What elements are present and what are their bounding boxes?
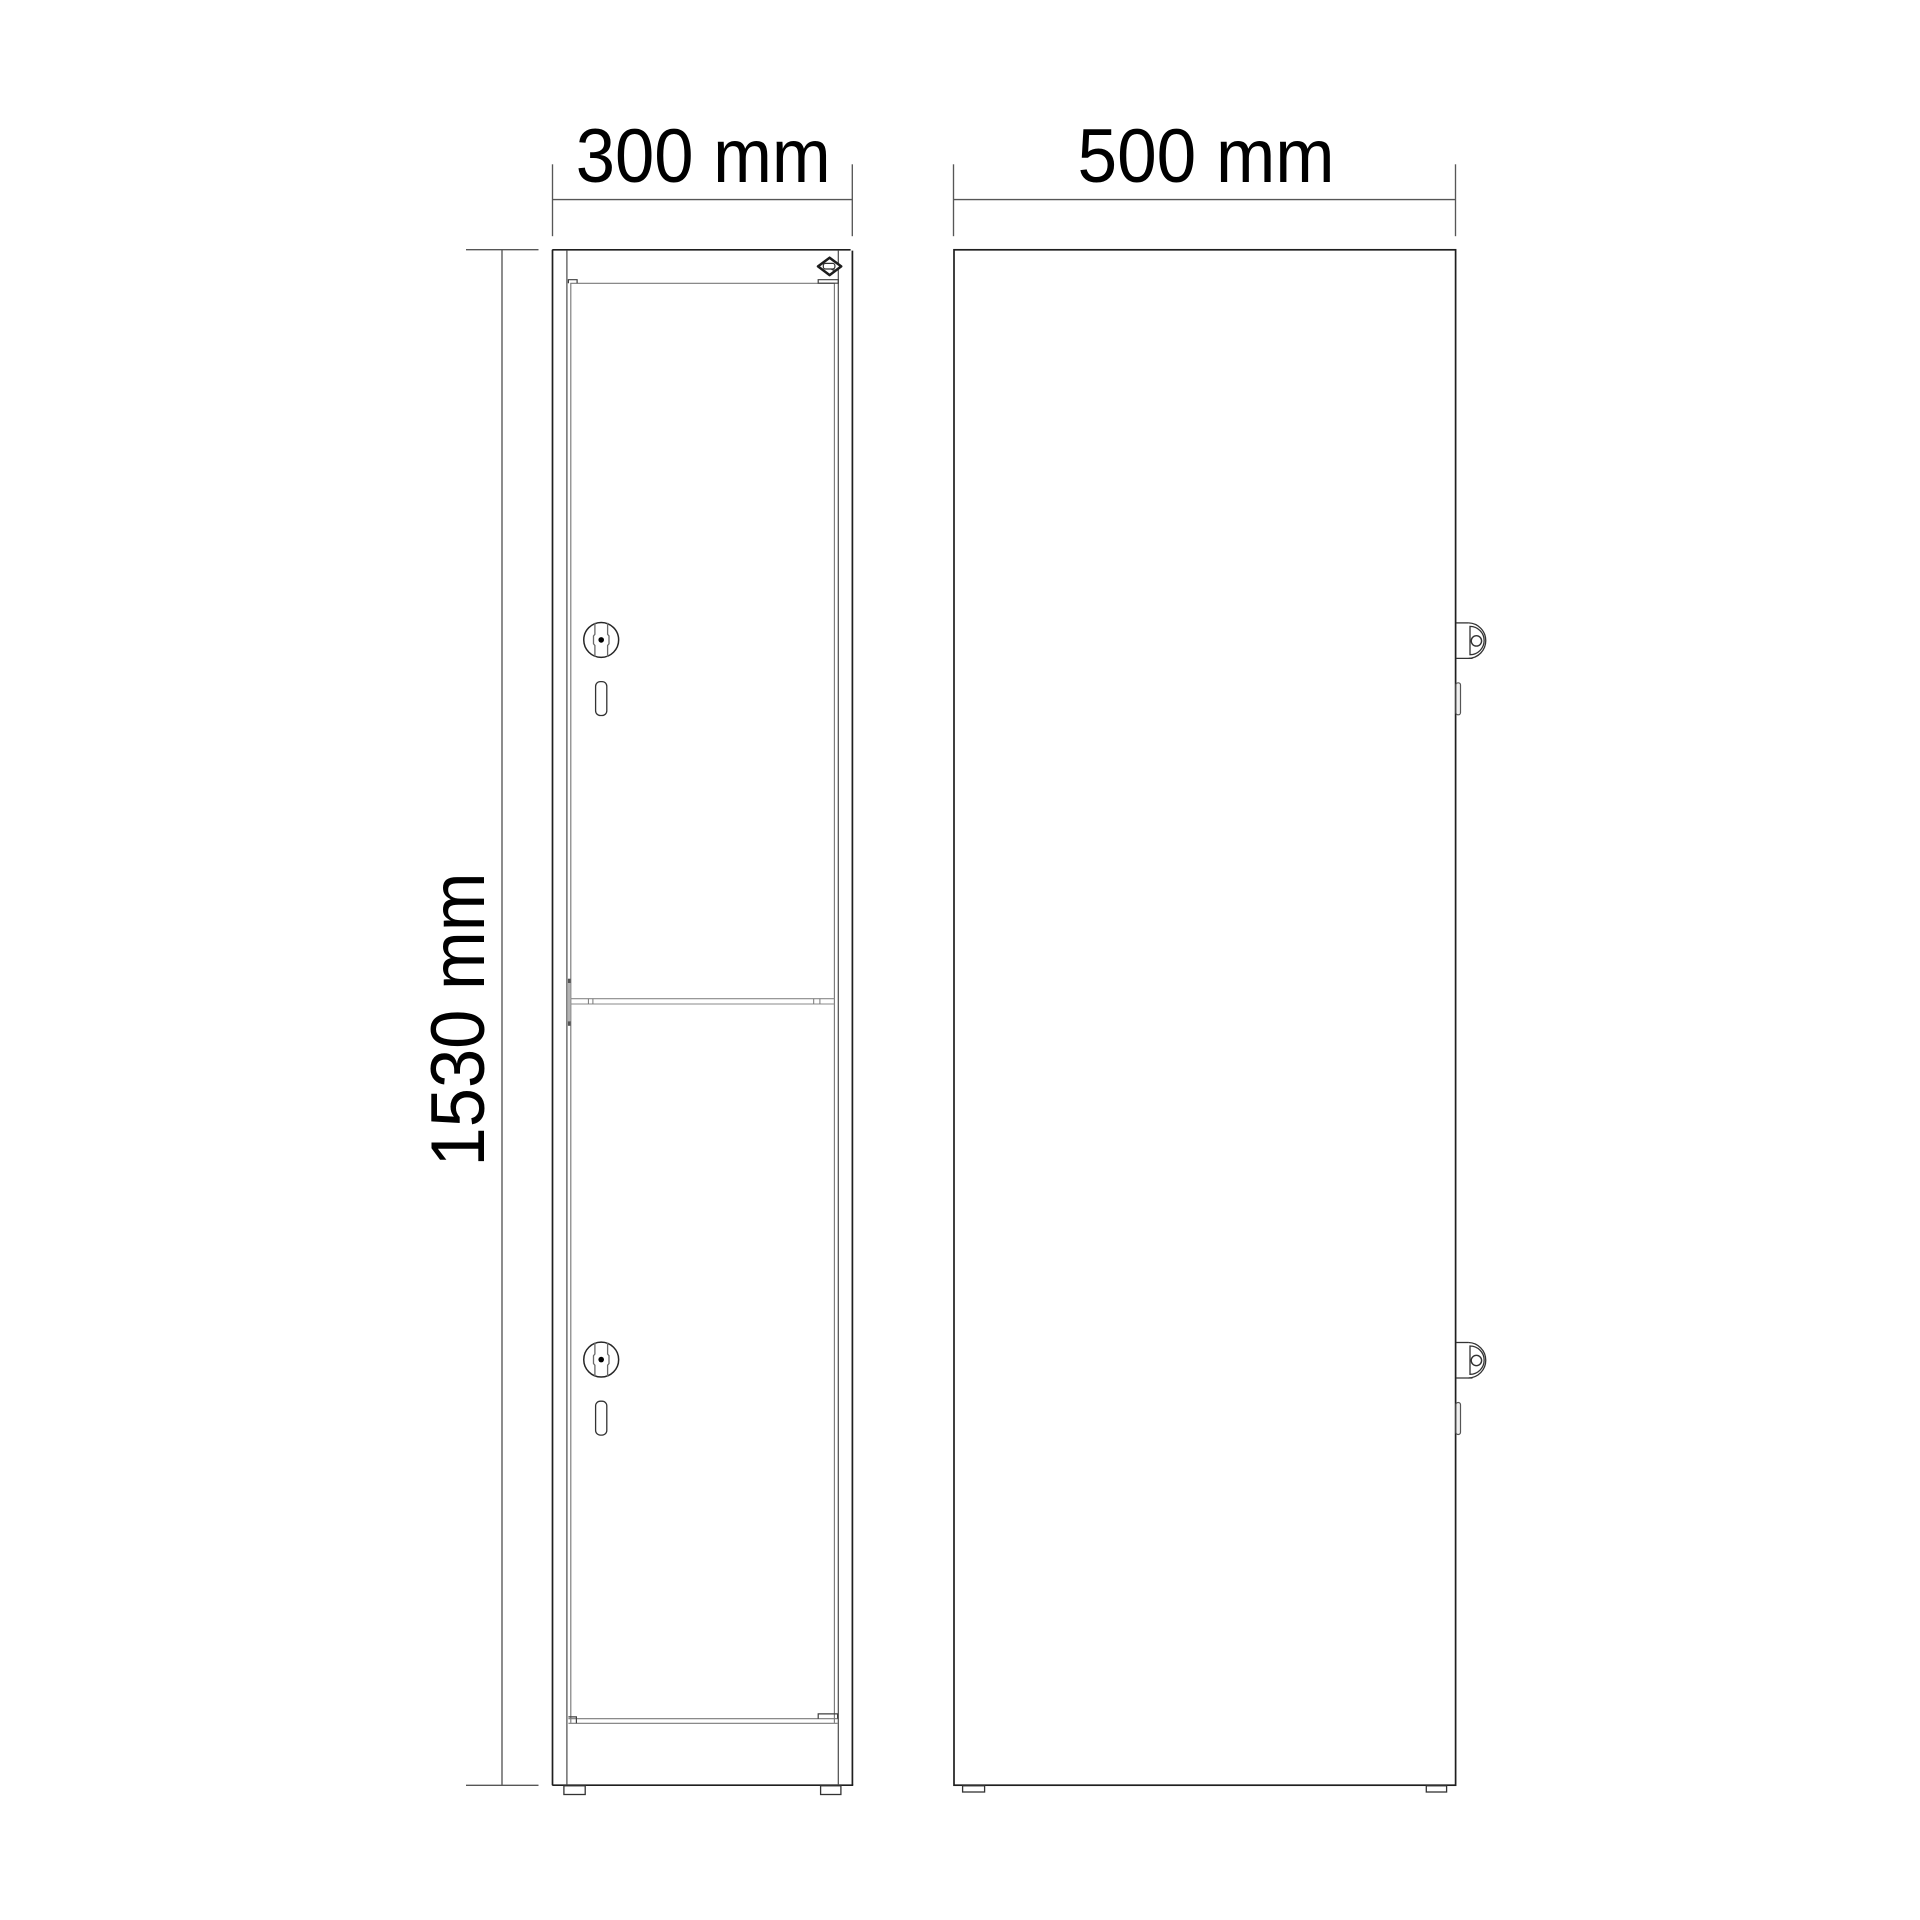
svg-text:1530 mm: 1530 mm (416, 873, 501, 1167)
svg-text:500 mm: 500 mm (1078, 114, 1335, 199)
svg-text:300 mm: 300 mm (576, 114, 831, 199)
